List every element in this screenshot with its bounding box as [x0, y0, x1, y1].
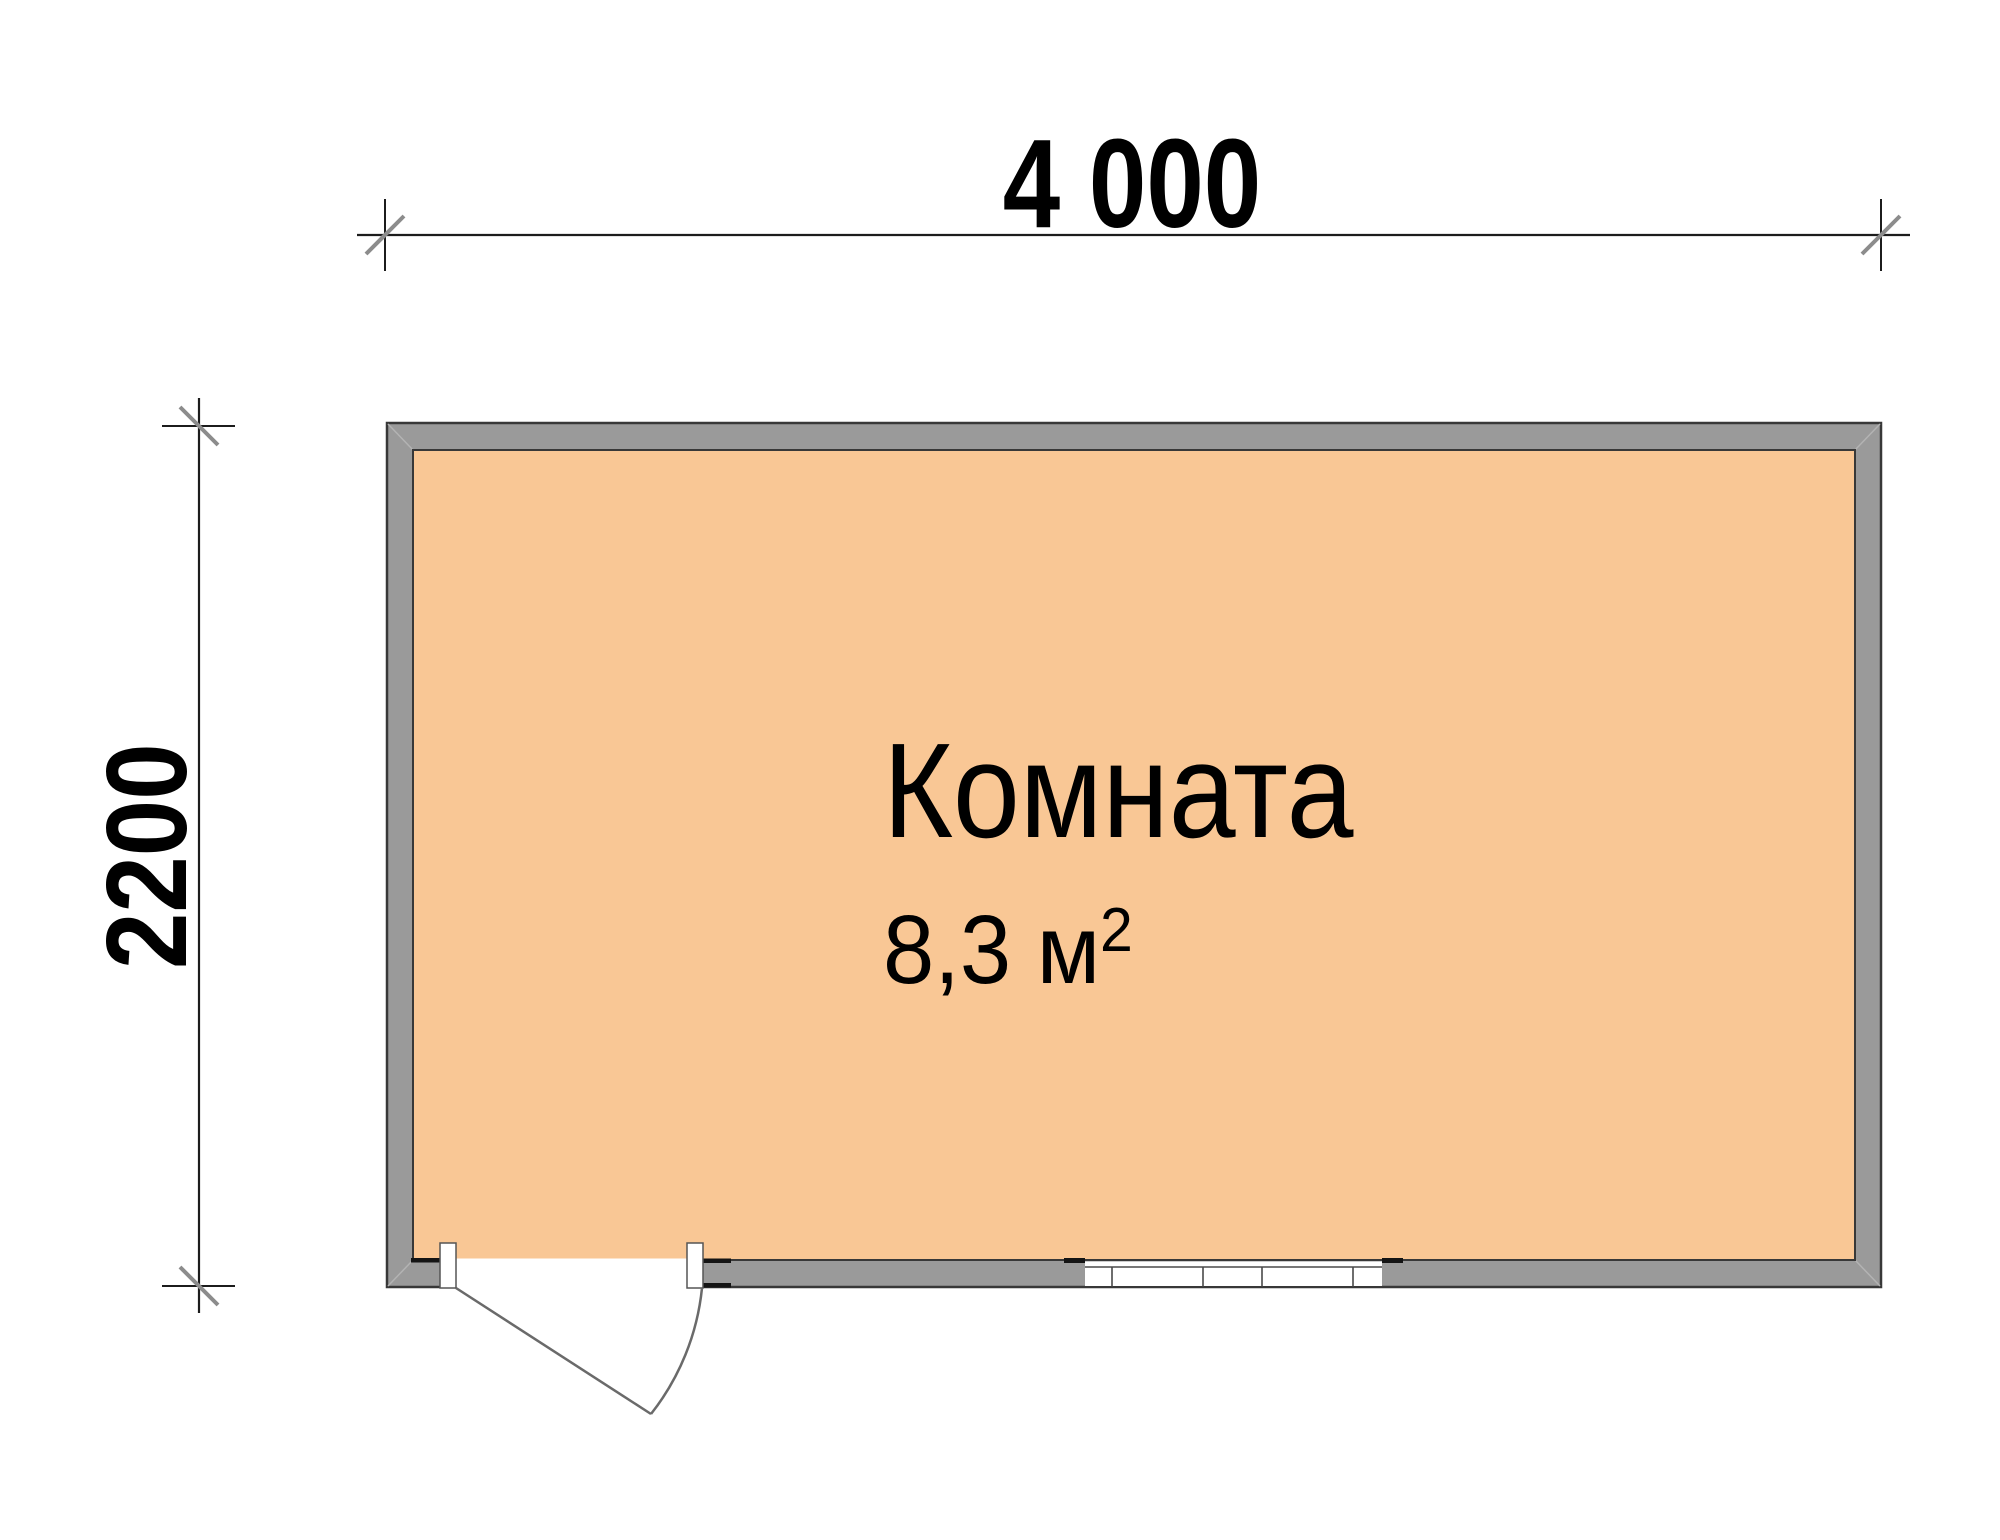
- door-swing-arc: [651, 1288, 702, 1414]
- door-opening-edge-mark-right-bottom: [703, 1283, 731, 1288]
- door-jamb-right: [687, 1243, 703, 1288]
- door-opening: [440, 1259, 703, 1293]
- room-area-value: 8,3 м: [883, 895, 1100, 1004]
- door-jamb-left: [440, 1243, 456, 1288]
- window: [1064, 1258, 1403, 1287]
- floor-plan: 4 000 2200 Комната 8,3 м2: [0, 0, 2000, 1540]
- height-dimension-text: 2200: [91, 743, 205, 969]
- door: [411, 1243, 731, 1414]
- width-dimension-label: 4 000: [968, 121, 1296, 247]
- window-opening: [1085, 1262, 1382, 1287]
- door-opening-edge-mark-left: [411, 1258, 440, 1263]
- room-area-label: 8,3 м2: [883, 901, 1133, 998]
- window-edge-mark-right: [1382, 1258, 1403, 1263]
- room-area-superscript: 2: [1100, 896, 1133, 965]
- room-name-label: Комната: [883, 723, 1353, 858]
- window-edge-mark-left: [1064, 1258, 1085, 1263]
- door-opening-edge-mark-right-top: [703, 1259, 731, 1264]
- door-leaf: [456, 1288, 651, 1414]
- height-dimension-label: 2200: [88, 656, 208, 1056]
